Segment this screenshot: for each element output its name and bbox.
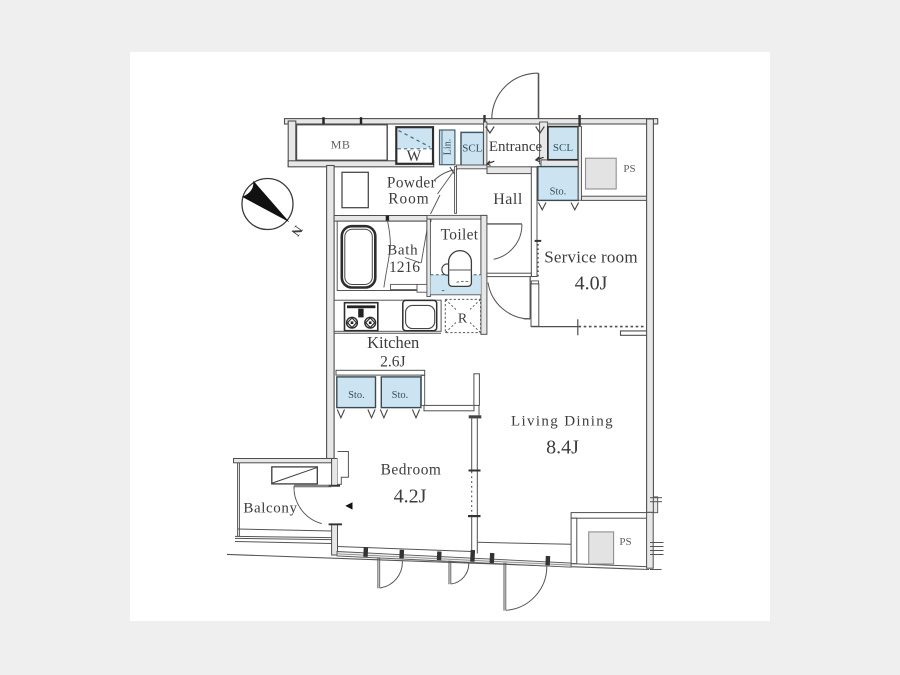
- svg-text:8.4J: 8.4J: [546, 437, 579, 459]
- svg-text:4.2J: 4.2J: [394, 486, 427, 508]
- svg-text:2.6J: 2.6J: [380, 353, 405, 370]
- svg-text:PS: PS: [623, 163, 635, 175]
- svg-text:PS: PS: [619, 536, 631, 548]
- svg-text:MB: MB: [331, 137, 351, 151]
- svg-text:Balcony: Balcony: [243, 500, 297, 516]
- svg-text:1216: 1216: [389, 259, 420, 276]
- svg-text:Bedroom: Bedroom: [381, 461, 442, 478]
- svg-text:R: R: [458, 312, 468, 327]
- svg-text:Living Dining: Living Dining: [511, 413, 614, 429]
- svg-text:Hall: Hall: [493, 191, 523, 208]
- svg-text:W: W: [407, 148, 422, 165]
- svg-text:SCL: SCL: [553, 142, 573, 154]
- svg-text:Sto.: Sto.: [550, 187, 567, 198]
- svg-text:Entrance: Entrance: [489, 139, 543, 155]
- svg-text:Kitchen: Kitchen: [367, 333, 419, 352]
- svg-text:4.0J: 4.0J: [575, 273, 608, 295]
- svg-text:Powder: Powder: [387, 175, 436, 192]
- svg-text:Toilet: Toilet: [441, 227, 479, 244]
- svg-text:SCL: SCL: [462, 143, 482, 155]
- svg-text:Service room: Service room: [544, 248, 638, 267]
- svg-text:Room: Room: [388, 191, 429, 208]
- svg-text:Lin.: Lin.: [443, 139, 454, 155]
- svg-text:Sto.: Sto.: [348, 390, 365, 401]
- svg-text:Sto.: Sto.: [392, 390, 409, 401]
- svg-text:Bath: Bath: [387, 242, 418, 258]
